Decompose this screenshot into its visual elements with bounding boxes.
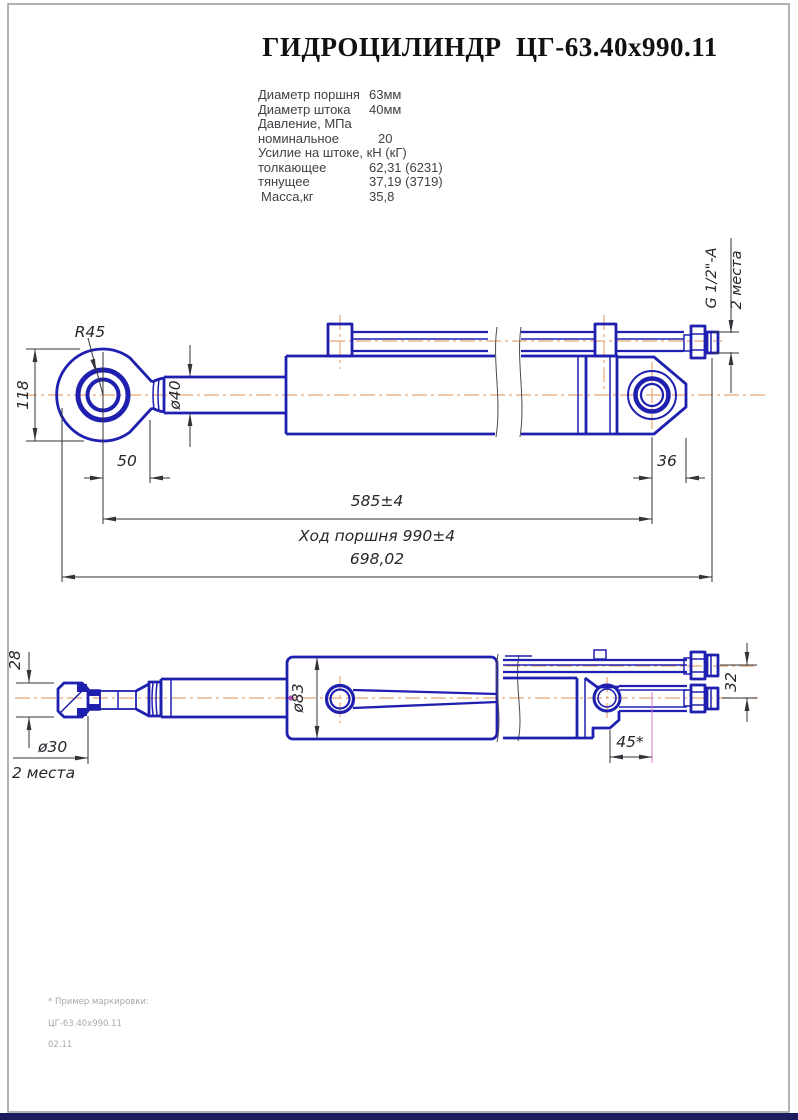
- spec-label-5: Усилие на штоке, кН (кГ): [258, 145, 407, 160]
- technical-drawing: ГИДРОЦИЛИНДР ЦГ-63.40x990.11 Диаметр пор…: [0, 0, 798, 1120]
- stroke-note: Ход поршня 990±4: [298, 527, 455, 545]
- dim-45-label: 45*: [616, 733, 644, 751]
- dim-30-places: 2 места: [12, 764, 75, 782]
- thread-label: G 1/2"-A: [704, 247, 720, 308]
- top-view: 28 ø30 2 места ø83 32: [6, 643, 762, 782]
- spec-value-4: 20: [378, 131, 392, 146]
- dim-36-label: 36: [657, 452, 677, 470]
- dim-28-label: 28: [6, 650, 24, 670]
- spec-label-1: Диаметр поршня: [258, 87, 360, 102]
- dim-rod-diameter-label: ø40: [166, 380, 184, 410]
- footnote: * Пример маркировки: ЦГ-63.40х990.11 02.…: [48, 997, 149, 1050]
- spec-value-7: 37,19 (3719): [369, 174, 443, 189]
- spec-label-2: Диаметр штока: [258, 102, 351, 117]
- dim-32-label: 32: [722, 672, 740, 692]
- port-fitting: [684, 326, 718, 358]
- thread-places-label: 2 места: [729, 251, 745, 310]
- spec-value-6: 62,31 (6231): [369, 160, 443, 175]
- dim-50: 50: [84, 352, 170, 524]
- break-lines-view1: [496, 327, 522, 437]
- spec-label-6: толкающее: [258, 160, 326, 175]
- dim-r45-label: R45: [75, 323, 106, 341]
- dim-50-label: 50: [117, 452, 137, 470]
- rear-port-boss: [595, 324, 616, 356]
- dim-28: 28: [6, 650, 54, 748]
- dim-83-label: ø83: [289, 683, 307, 713]
- dim-32: 32: [720, 643, 757, 722]
- dim-36: 36: [633, 437, 705, 524]
- footnote-line2: ЦГ-63.40х990.11: [48, 1019, 122, 1029]
- spec-table: Диаметр поршня 63мм Диаметр штока 40мм Д…: [258, 87, 443, 204]
- dim-698-label: 698,02: [350, 550, 404, 568]
- dim-30: ø30 2 места: [12, 716, 88, 782]
- dim-45: 45*: [610, 692, 652, 763]
- dim-30-label: ø30: [37, 738, 67, 756]
- spec-value-1: 63мм: [369, 87, 401, 102]
- dim-118-label: 118: [14, 380, 32, 410]
- spec-label-8: Масса,кг: [261, 189, 314, 204]
- centerlines-view2: [15, 666, 762, 723]
- spec-value-2: 40мм: [369, 102, 401, 117]
- dim-thread: G 1/2"-A 2 места: [704, 238, 745, 393]
- footer-bar: [0, 1113, 798, 1120]
- footnote-line1: * Пример маркировки:: [48, 997, 149, 1007]
- spec-value-8: 35,8: [369, 189, 394, 204]
- dim-rod-diameter: ø40: [166, 345, 192, 447]
- side-view: R45 118 ø40 50: [14, 238, 768, 582]
- rod-eye-side: [58, 683, 100, 717]
- dim-585-label: 585±4: [351, 492, 403, 510]
- dim-585: 585±4: [103, 492, 652, 521]
- rear-section-top: [503, 650, 687, 738]
- spec-label-4: номинальное: [258, 131, 339, 146]
- footnote-line3: 02.11: [48, 1040, 72, 1050]
- spec-label-7: тянущее: [258, 174, 310, 189]
- page-title: ГИДРОЦИЛИНДР ЦГ-63.40x990.11: [262, 32, 717, 62]
- spec-label-3: Давление, МПа: [258, 116, 353, 131]
- dim-698: 698,02: [62, 358, 712, 582]
- drawing-sheet: ГИДРОЦИЛИНДР ЦГ-63.40x990.11 Диаметр пор…: [0, 0, 798, 1120]
